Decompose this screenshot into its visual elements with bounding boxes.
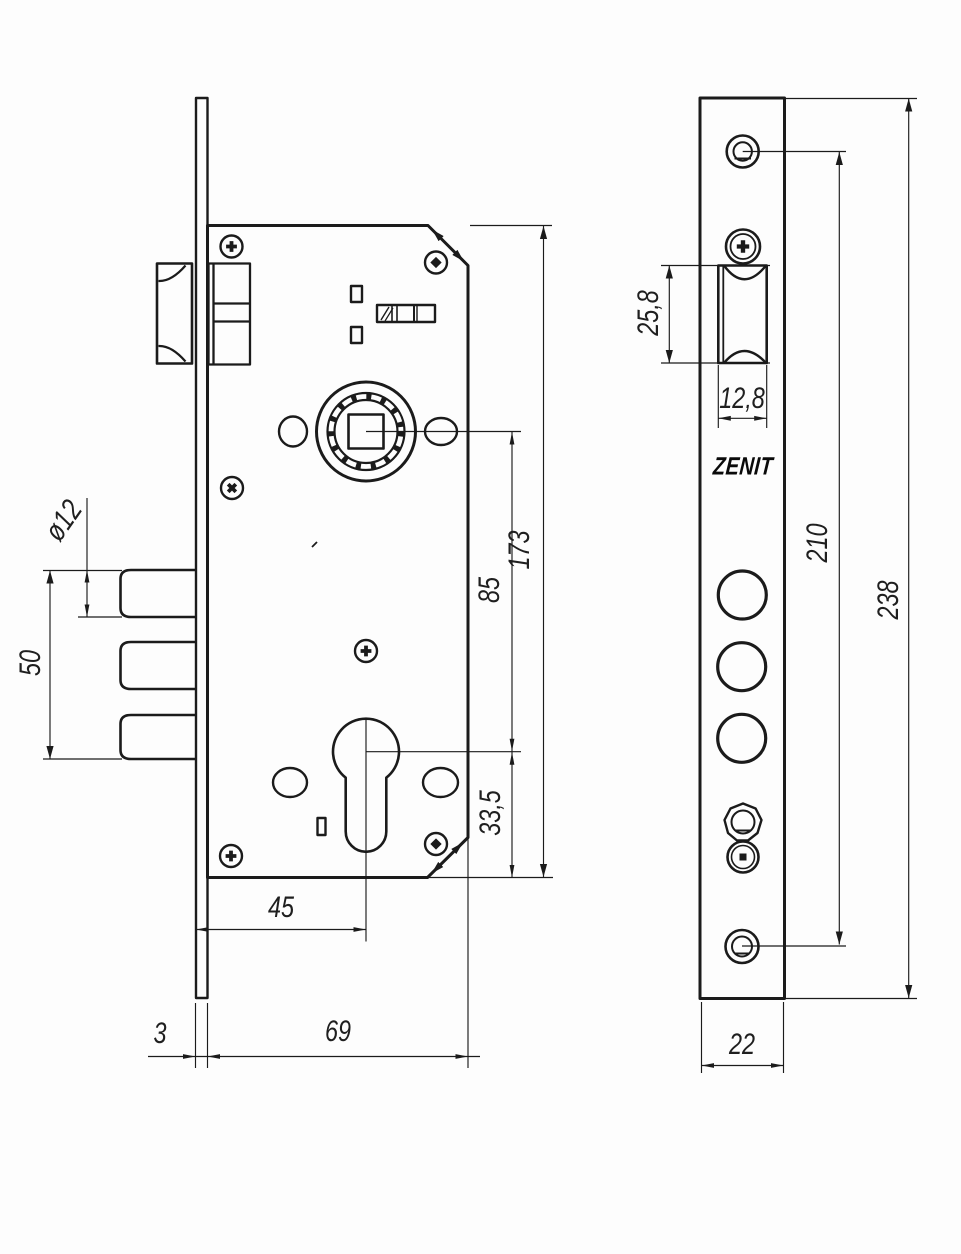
latch-bolt-front: [157, 264, 192, 364]
dim-label-latch-width: 12,8: [719, 384, 765, 414]
dim-label-cylinder-to-bottom: 33,5: [476, 790, 506, 836]
faceplate-edge: [196, 98, 208, 998]
dim-label-latch-height: 25,8: [634, 290, 664, 336]
dim-label-faceplate-width: 22: [729, 1030, 755, 1060]
faceplate-front: [700, 98, 785, 999]
side-view: [700, 98, 785, 999]
dim-label-hole-spacing: 210: [803, 523, 833, 562]
deadbolt-pin: [121, 715, 196, 759]
faceplate-screw-top: [726, 230, 760, 264]
lock-technical-drawing: ø12 50 85 173 33,5 45 3 69 25,8 12,8 210…: [0, 0, 961, 1254]
deadbolt-pin: [121, 570, 196, 617]
brand-logo: ZENIT: [712, 453, 774, 482]
dim-label-faceplate-length: 238: [874, 580, 904, 619]
dim-label-hub-to-cylinder: 85: [475, 577, 505, 603]
dim-label-faceplate-thickness: 3: [153, 1019, 166, 1049]
front-view: [121, 98, 469, 998]
dim-label-backset: 45: [268, 893, 294, 923]
drawing-linework: [0, 0, 961, 1254]
dim-label-case-height: 173: [505, 530, 535, 569]
deadbolt-pin: [121, 642, 196, 689]
dim-label-case-depth: 69: [325, 1017, 351, 1047]
dim-label-bolt-group-height: 50: [16, 650, 46, 676]
deadbolt-pins: [121, 570, 196, 759]
latch-body: [209, 264, 251, 365]
faceplate-screw-bottom: [728, 842, 759, 873]
